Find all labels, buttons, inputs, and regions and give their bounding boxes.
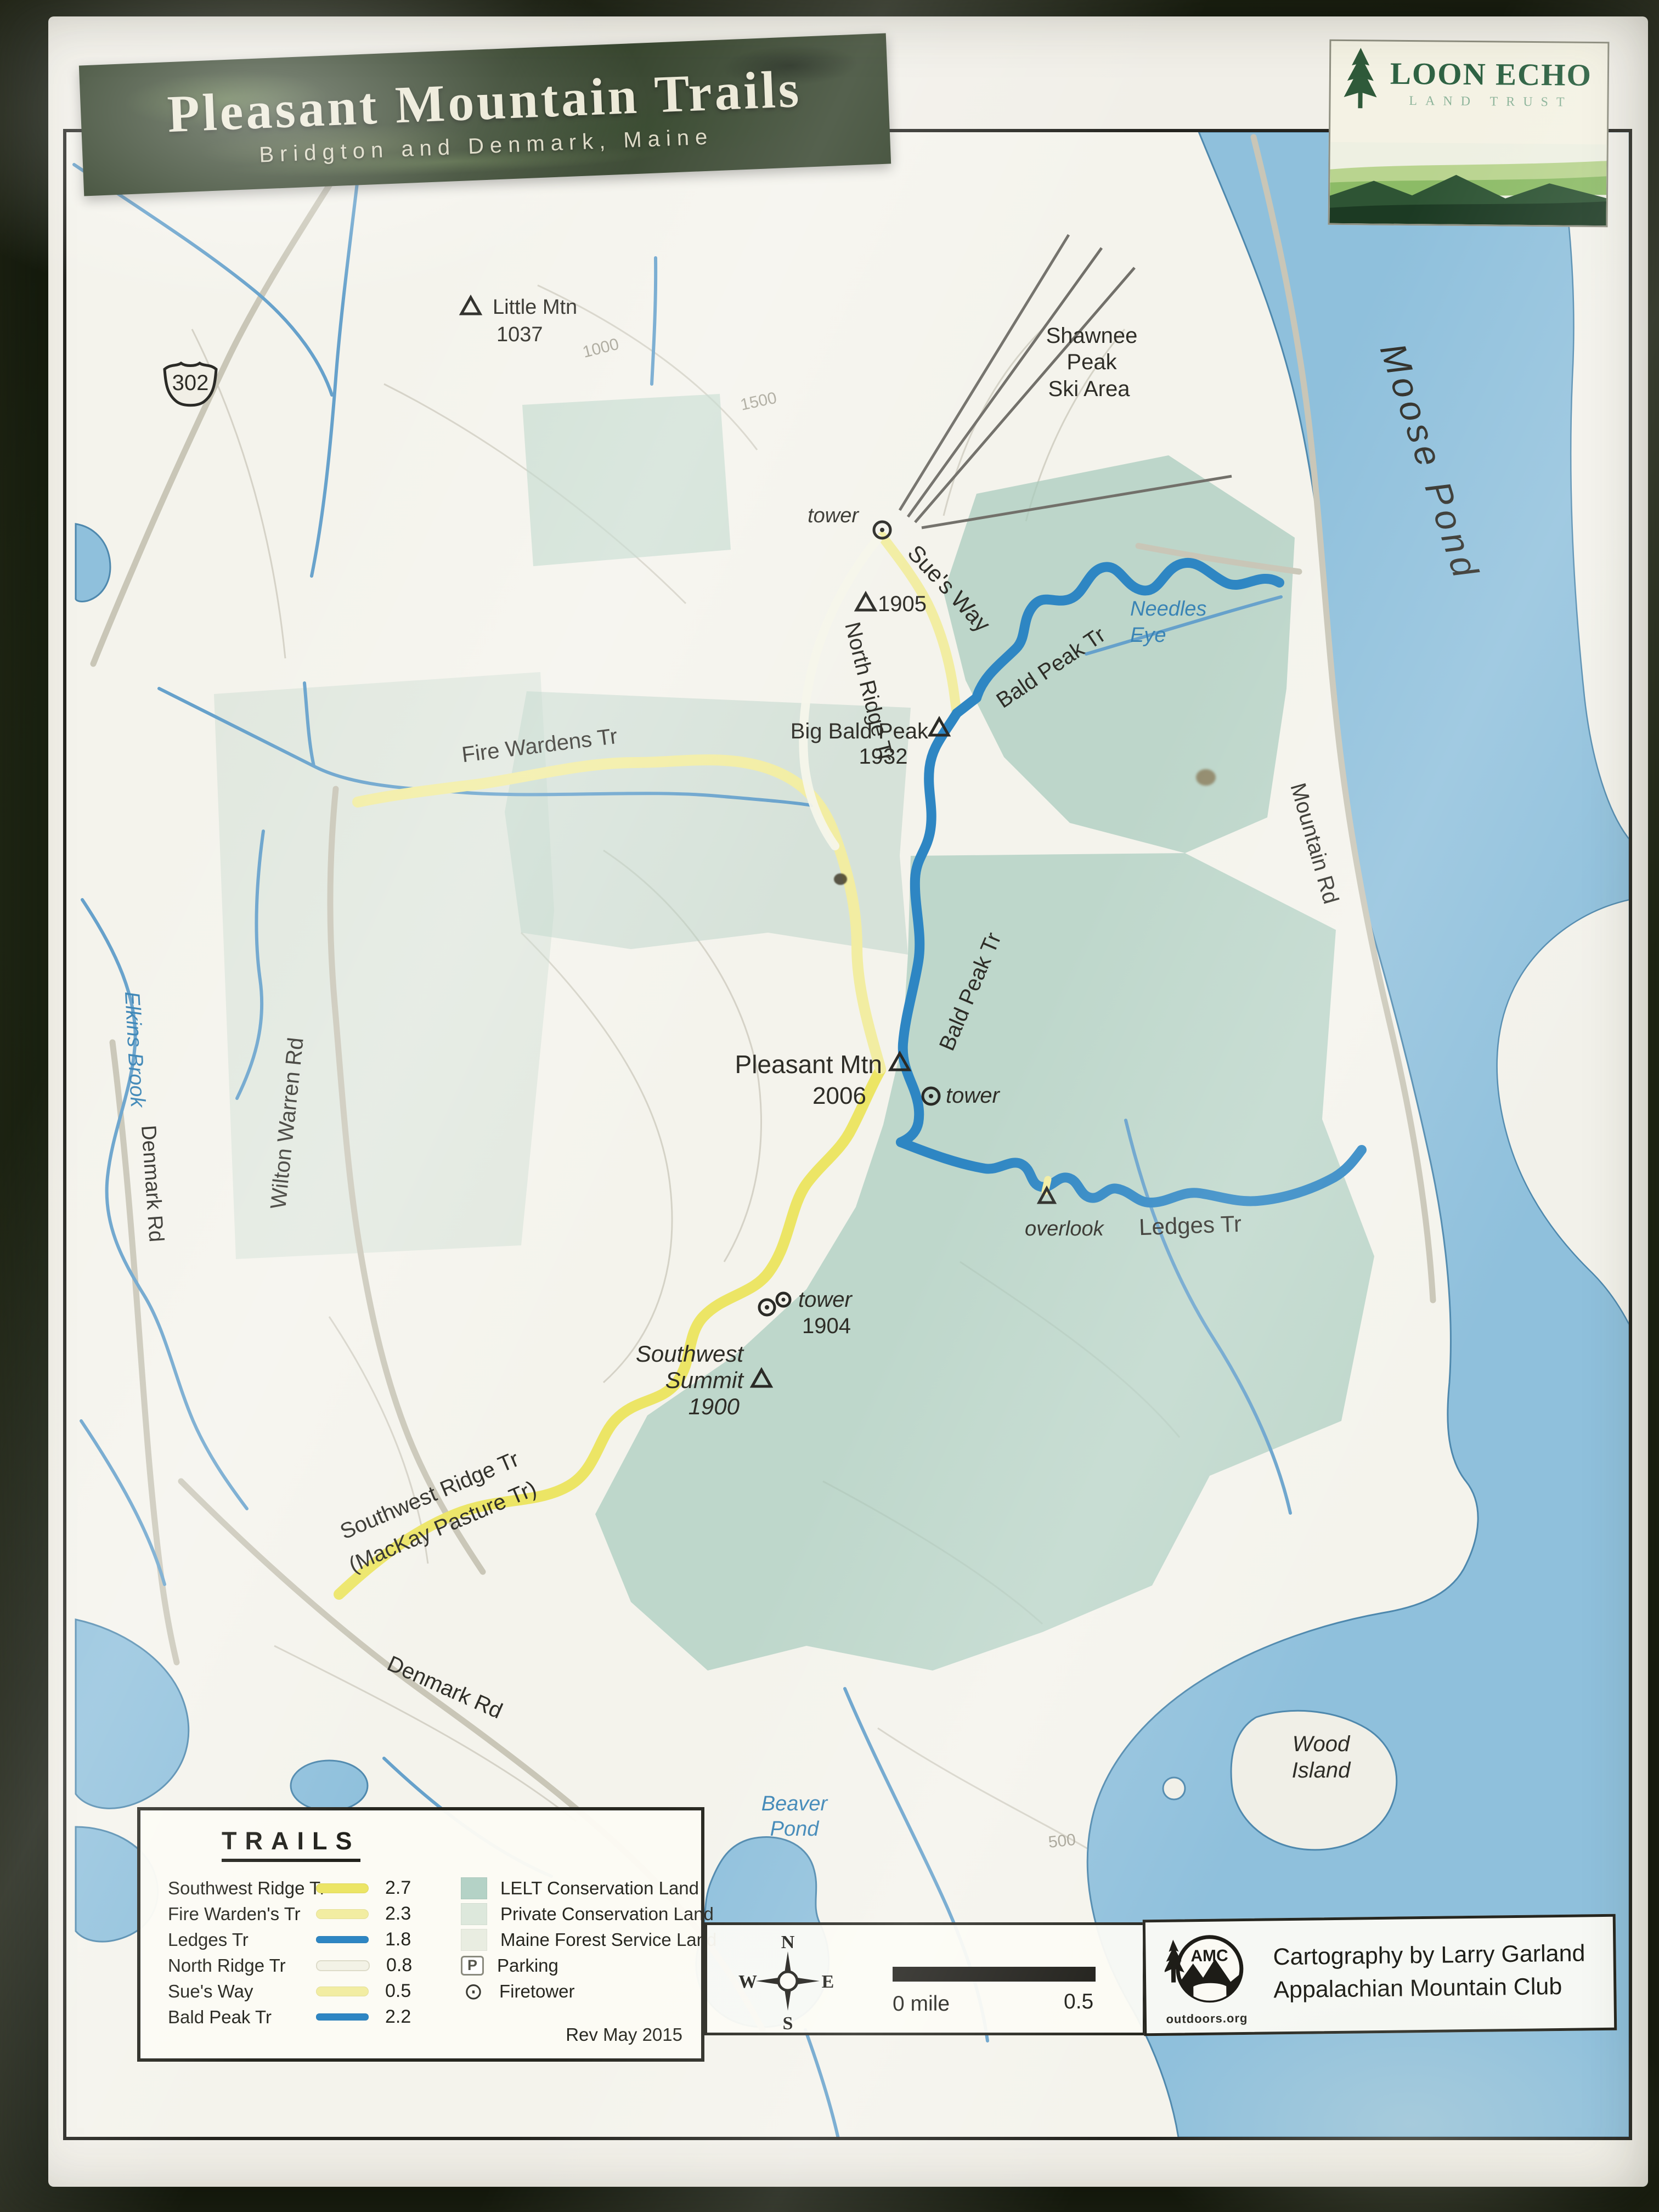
compass-rose-icon: N S W E — [736, 1927, 840, 2032]
land-swatch — [461, 1929, 487, 1951]
trail-name: Ledges Tr — [168, 1929, 316, 1950]
scale-start-label: 0 mile — [893, 1992, 950, 2016]
land-name: Parking — [497, 1955, 558, 1976]
pleasant-mtn-label: Pleasant Mtn — [735, 1050, 882, 1079]
trail-miles: 1.8 — [385, 1929, 411, 1950]
route-302-number: 302 — [172, 371, 209, 395]
land-swatch — [461, 1877, 487, 1899]
loon-echo-header: LOON ECHO LAND TRUST — [1337, 47, 1592, 119]
legend-box: TRAILS Southwest Ridge Tr 2.7 Fire Warde… — [137, 1807, 704, 2062]
amc-abbr: AMC — [1190, 1946, 1228, 1965]
sw-summit-elev: 1900 — [689, 1393, 740, 1419]
trail-name: Southwest Ridge Tr — [168, 1878, 316, 1899]
contour-label-500: 500 — [1047, 1831, 1076, 1852]
scale-end-label: 0.5 — [1064, 1990, 1093, 2014]
legend-row-forest-service-land: Maine Forest Service Land — [461, 1930, 716, 1949]
big-bald-elev: 1932 — [859, 744, 908, 769]
legend-row-bald-peak: Bald Peak Tr 2.2 — [168, 2007, 412, 2027]
trail-name: Fire Warden's Tr — [168, 1904, 316, 1925]
trail-sign-photo: 302 Little Mtn 1037 — [0, 0, 1659, 2212]
compass-south: S — [783, 2013, 793, 2032]
trail-swatch — [316, 1909, 369, 1919]
pleasant-elev: 2006 — [812, 1082, 866, 1109]
land-name: Private Conservation Land — [500, 1904, 714, 1925]
trail-swatch — [316, 1936, 369, 1943]
needles-eye-label-2: Eye — [1130, 624, 1166, 647]
small-islet — [1163, 1778, 1185, 1799]
ledges-label: Ledges Tr — [1138, 1211, 1242, 1240]
compass-north: N — [781, 1932, 795, 1953]
wood-island-label-1: Wood — [1293, 1732, 1351, 1756]
trail-swatch — [316, 1883, 369, 1893]
tower-1904-label: tower — [798, 1288, 853, 1312]
sw-summit-label-2: Summit — [665, 1367, 745, 1393]
north-tower-label: tower — [808, 504, 859, 527]
shawnee-label-2: Peak — [1066, 350, 1117, 374]
legend-title: TRAILS — [222, 1827, 360, 1862]
legend-row-ledges: Ledges Tr 1.8 — [168, 1930, 412, 1949]
compass-west: W — [738, 1972, 757, 1992]
trail-miles: 0.8 — [386, 1955, 412, 1976]
revision-date: Rev May 2015 — [566, 2024, 682, 2045]
credit-line-2: Appalachian Mountain Club — [1273, 1973, 1562, 2004]
land-name: LELT Conservation Land — [500, 1878, 699, 1899]
beaver-pond-label-2: Pond — [770, 1818, 820, 1841]
trail-miles: 0.5 — [385, 1980, 411, 2002]
legend-row-private-land: Private Conservation Land — [461, 1904, 716, 1923]
shawnee-label-3: Ski Area — [1048, 377, 1131, 401]
trail-name: North Ridge Tr — [168, 1955, 316, 1976]
conservation-patch — [522, 394, 731, 566]
trail-swatch — [316, 1960, 370, 1971]
amc-logo-icon: AMC — [1164, 1929, 1249, 2013]
trail-name: Bald Peak Tr — [168, 2007, 316, 2028]
trail-swatch — [316, 2013, 369, 2021]
parking-icon: P — [461, 1956, 484, 1976]
legend-row-lelt-land: LELT Conservation Land — [461, 1878, 716, 1898]
scale-box: N S W E 0 mile 0.5 — [704, 1922, 1145, 2035]
land-name: Firetower — [499, 1981, 575, 2002]
scale-bar — [893, 1967, 1096, 1982]
shawnee-label-1: Shawnee — [1046, 324, 1138, 348]
credit-line-1: Cartography by Larry Garland — [1273, 1940, 1585, 1971]
wood-island-label-2: Island — [1292, 1758, 1351, 1782]
little-mtn-elev: 1037 — [496, 323, 543, 346]
pond-small — [291, 1760, 368, 1811]
trail-miles: 2.7 — [385, 1877, 411, 1899]
amc-website: outdoors.org — [1165, 2011, 1249, 2027]
needles-eye-label-1: Needles — [1130, 597, 1206, 620]
pleasant-tower-label: tower — [946, 1084, 1000, 1108]
route-302-shield: 302 — [165, 363, 216, 405]
legend-row-parking: P Parking — [461, 1956, 716, 1975]
land-name: Maine Forest Service Land — [500, 1929, 716, 1950]
legend-row-firetower: ⊙ Firetower — [461, 1982, 716, 2001]
peak-1905-label: 1905 — [878, 592, 927, 616]
loon-echo-text: LOON ECHO LAND TRUST — [1390, 56, 1592, 110]
legend-land-rows: LELT Conservation Land Private Conservat… — [461, 1878, 716, 2001]
trail-miles: 2.3 — [385, 1903, 411, 1925]
legend-row-southwest-ridge: Southwest Ridge Tr 2.7 — [168, 1878, 412, 1898]
big-bald-label: Big Bald Peak — [791, 719, 929, 743]
firetower-icon: ⊙ — [461, 1978, 486, 2005]
tower-1904-elev: 1904 — [802, 1314, 851, 1338]
overlook-label: overlook — [1025, 1217, 1105, 1240]
loon-echo-landscape-art — [1330, 142, 1607, 225]
publisher-name: LOON ECHO — [1390, 56, 1593, 93]
legend-row-north-ridge: North Ridge Tr 0.8 — [168, 1956, 412, 1975]
beaver-pond-label-1: Beaver — [761, 1792, 828, 1815]
stain-mark — [834, 873, 847, 885]
trail-miles: 2.2 — [385, 2006, 411, 2028]
trail-name: Sue's Way — [168, 1981, 316, 2002]
legend-trail-rows: Southwest Ridge Tr 2.7 Fire Warden's Tr … — [168, 1878, 412, 2027]
landscape-illustration — [1330, 142, 1607, 225]
trail-swatch — [316, 1987, 369, 1996]
publisher-tagline: LAND TRUST — [1409, 94, 1572, 110]
legend-row-fire-wardens: Fire Warden's Tr 2.3 — [168, 1904, 412, 1923]
compass-east: E — [822, 1972, 834, 1992]
pine-tree-icon — [1337, 47, 1384, 117]
stain-mark — [1196, 769, 1216, 786]
land-swatch — [461, 1903, 487, 1925]
little-mtn-label: Little Mtn — [493, 296, 577, 319]
credit-box: AMC outdoors.org Cartography by Larry Ga… — [1143, 1914, 1617, 2036]
legend-row-sues-way: Sue's Way 0.5 — [168, 1982, 412, 2001]
loon-echo-logo: LOON ECHO LAND TRUST — [1328, 39, 1610, 227]
sw-summit-label-1: Southwest — [636, 1341, 744, 1367]
